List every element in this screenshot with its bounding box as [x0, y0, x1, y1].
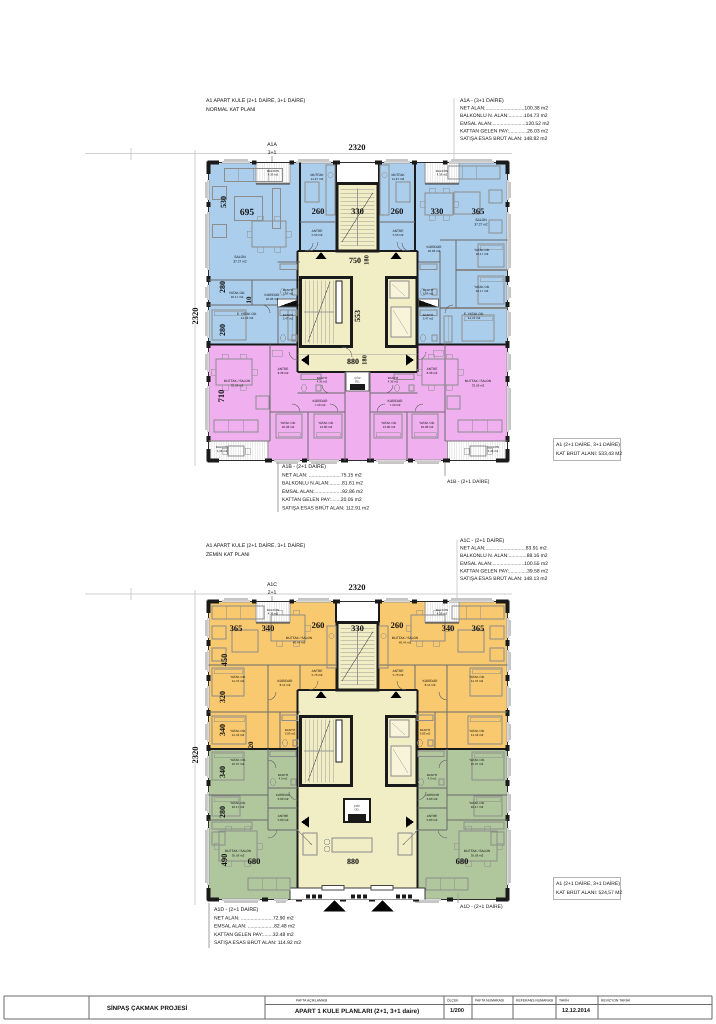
svg-text:4.3 m2: 4.3 m2 — [279, 777, 288, 781]
svg-text:20: 20 — [247, 741, 255, 749]
svg-text:TARİH: TARİH — [559, 999, 569, 1003]
svg-text:SALON: SALON — [234, 255, 246, 259]
svg-text:A1 (2+1 DAİRE, 3+1 DAİRE): A1 (2+1 DAİRE, 3+1 DAİRE) — [556, 441, 620, 448]
svg-text:A1A: A1A — [267, 142, 277, 148]
svg-text:4.35 m2: 4.35 m2 — [437, 612, 448, 616]
svg-text:11.76 m2: 11.76 m2 — [471, 679, 484, 683]
svg-text:SİNPAŞ ÇAKMAK PROJESİ: SİNPAŞ ÇAKMAK PROJESİ — [107, 1004, 188, 1012]
svg-text:14.43 m2: 14.43 m2 — [241, 316, 254, 320]
svg-text:10.98 m2: 10.98 m2 — [421, 425, 434, 429]
svg-text:2320: 2320 — [349, 582, 366, 592]
svg-text:NET ALAN: ....................: NET ALAN: .......................72.90 m… — [214, 915, 294, 921]
svg-text:MUTFAK / SALON: MUTFAK / SALON — [464, 849, 491, 853]
svg-text:A1B - (2+1 DAİRE): A1B - (2+1 DAİRE) — [447, 478, 490, 485]
svg-text:10.06 m2: 10.06 m2 — [428, 249, 441, 253]
svg-text:4.3 m2: 4.3 m2 — [428, 777, 437, 781]
svg-text:MUTFAK / SALON: MUTFAK / SALON — [224, 379, 251, 383]
svg-text:340: 340 — [218, 724, 227, 736]
svg-text:7.10 m2: 7.10 m2 — [390, 403, 401, 407]
svg-text:KAT BRÜT ALANI: 533,43 M2: KAT BRÜT ALANI: 533,43 M2 — [556, 450, 622, 457]
svg-text:A1 APART KULE (2+1 DAİRE, 3+1: A1 APART KULE (2+1 DAİRE, 3+1 DAİRE) — [206, 542, 305, 549]
svg-text:280: 280 — [218, 281, 227, 293]
svg-text:490: 490 — [219, 854, 229, 867]
svg-text:4.36 m2: 4.36 m2 — [388, 380, 399, 384]
svg-text:11.27 m2: 11.27 m2 — [311, 177, 324, 181]
svg-text:5.70 m2: 5.70 m2 — [393, 673, 404, 677]
svg-text:NET ALAN:.....................: NET ALAN:............................100… — [460, 106, 548, 112]
svg-text:695: 695 — [240, 208, 255, 218]
svg-text:A1A - (3+1 DAİRE): A1A - (3+1 DAİRE) — [460, 97, 504, 104]
svg-text:ZEMİN KAT PLANI: ZEMİN KAT PLANI — [206, 551, 250, 558]
svg-text:3.60 m2: 3.60 m2 — [278, 797, 289, 801]
svg-text:10.17 m2: 10.17 m2 — [471, 805, 484, 809]
svg-text:5.60 m2: 5.60 m2 — [427, 818, 438, 822]
svg-text:A1 (2+1 DAİRE, 3+1 DAİRE): A1 (2+1 DAİRE, 3+1 DAİRE) — [556, 880, 620, 887]
svg-text:180: 180 — [362, 355, 369, 365]
svg-text:365: 365 — [472, 206, 485, 216]
svg-text:REFERANS NUMARASI: REFERANS NUMARASI — [516, 999, 553, 1003]
svg-text:4.35 m2: 4.35 m2 — [268, 612, 279, 616]
svg-text:BALKONLU N.ALAN:.........81.61: BALKONLU N.ALAN:.........81.61 m2 — [282, 481, 363, 487]
svg-text:15.37 m2: 15.37 m2 — [232, 762, 245, 766]
svg-text:8.38 m2: 8.38 m2 — [427, 371, 438, 375]
svg-text:2.95 m2: 2.95 m2 — [283, 292, 294, 296]
svg-text:EMSAL ALAN: ..................: EMSAL ALAN: ...................82.48 m2 — [214, 924, 295, 930]
svg-text:A1D - (2+1 DAİRE): A1D - (2+1 DAİRE) — [214, 906, 259, 913]
svg-text:365: 365 — [230, 623, 243, 633]
svg-text:PAFTA NUMARASI: PAFTA NUMARASI — [475, 999, 504, 1003]
svg-text:4.35 m2: 4.35 m2 — [437, 173, 448, 177]
svg-text:EMSAL ALAN:...................: EMSAL ALAN:....................92.86 m2 — [282, 489, 363, 495]
svg-text:15.37 m2: 15.37 m2 — [471, 762, 484, 766]
svg-text:280: 280 — [218, 324, 227, 336]
svg-text:KAT BRÜT ALANI: 524,57 M2: KAT BRÜT ALANI: 524,57 M2 — [556, 889, 622, 896]
svg-text:750: 750 — [349, 256, 361, 265]
svg-text:11.76 m2: 11.76 m2 — [232, 679, 245, 683]
svg-text:2320: 2320 — [190, 747, 200, 764]
svg-text:450: 450 — [219, 654, 229, 667]
svg-text:KATTAN GELEN PAY:.............: KATTAN GELEN PAY:.............26.03 m2 — [460, 128, 548, 134]
svg-text:330: 330 — [431, 206, 444, 216]
svg-text:365: 365 — [472, 623, 485, 633]
svg-text:37.27 m2: 37.27 m2 — [233, 259, 247, 263]
svg-text:2320: 2320 — [349, 142, 366, 152]
svg-text:340: 340 — [218, 766, 227, 778]
svg-text:A1B - (2+1 DAİRE): A1B - (2+1 DAİRE) — [282, 463, 326, 470]
svg-text:330: 330 — [351, 206, 364, 216]
svg-text:ÖLÇEK: ÖLÇEK — [447, 999, 459, 1003]
svg-text:35.58 m2: 35.58 m2 — [232, 853, 245, 857]
svg-text:35.58 m2: 35.58 m2 — [471, 853, 484, 857]
svg-text:7.10 m2: 7.10 m2 — [315, 403, 326, 407]
svg-text:10.98 m2: 10.98 m2 — [282, 425, 295, 429]
svg-text:MUTFAK / SALON: MUTFAK / SALON — [225, 849, 252, 853]
svg-text:13.80 m2: 13.80 m2 — [320, 425, 333, 429]
svg-text:8.14 m2: 8.14 m2 — [425, 683, 436, 687]
svg-text:330: 330 — [351, 623, 364, 633]
svg-text:5.60 m2: 5.60 m2 — [278, 818, 289, 822]
svg-text:2320: 2320 — [190, 308, 200, 325]
svg-text:340: 340 — [262, 623, 275, 633]
svg-text:NET ALAN: ....................: NET ALAN: .......................75.15 m… — [282, 472, 362, 478]
svg-text:260: 260 — [391, 620, 404, 630]
svg-text:PAFTA AÇIKLAMASI: PAFTA AÇIKLAMASI — [296, 999, 327, 1003]
svg-text:14.42 m2: 14.42 m2 — [471, 733, 484, 737]
svg-text:40.44 m2: 40.44 m2 — [399, 640, 412, 644]
svg-text:880: 880 — [347, 357, 359, 366]
svg-text:2+1: 2+1 — [268, 590, 277, 596]
svg-text:14.43 m2: 14.43 m2 — [468, 316, 481, 320]
svg-text:MUTFAK / SALON: MUTFAK / SALON — [465, 379, 492, 383]
svg-text:10.17 m2: 10.17 m2 — [232, 805, 245, 809]
svg-text:NORMAL KAT PLANI: NORMAL KAT PLANI — [206, 107, 256, 113]
svg-text:880: 880 — [347, 857, 359, 866]
svg-text:5.70 m2: 5.70 m2 — [312, 673, 323, 677]
svg-text:A1C - (2+1 DAİRE): A1C - (2+1 DAİRE) — [460, 537, 505, 544]
svg-text:13.80 m2: 13.80 m2 — [383, 425, 396, 429]
svg-text:14.42 m2: 14.42 m2 — [232, 733, 245, 737]
svg-text:OD.: OD. — [355, 380, 361, 384]
svg-text:5.50 m2: 5.50 m2 — [393, 233, 404, 237]
svg-text:12.12.2014: 12.12.2014 — [562, 1008, 591, 1014]
svg-text:EMSAL ALAN:...................: EMSAL ALAN:.......................100.55… — [460, 561, 548, 567]
svg-text:4.35 m2: 4.35 m2 — [268, 173, 279, 177]
svg-text:MUTFAK / SALON: MUTFAK / SALON — [392, 636, 419, 640]
svg-text:280: 280 — [218, 806, 227, 818]
svg-text:1/200: 1/200 — [450, 1007, 464, 1014]
svg-text:260: 260 — [312, 206, 325, 216]
svg-text:10: 10 — [245, 296, 253, 304]
svg-text:530: 530 — [219, 196, 228, 208]
svg-text:710: 710 — [216, 390, 226, 403]
svg-text:10.17 m2: 10.17 m2 — [231, 295, 244, 299]
svg-text:APART 1 KULE PLANLARI (2+1, 3: APART 1 KULE PLANLARI (2+1, 3+1 daire) — [295, 1008, 419, 1015]
svg-text:KATTAN GELEN PAY:.......32.48: KATTAN GELEN PAY:.......32.48 m2 — [214, 932, 294, 938]
svg-text:BALKONLU N. ALAN:.............: BALKONLU N. ALAN:.............88.16 m2 — [460, 553, 548, 559]
svg-text:SATIŞA ESAS BRÜT ALAN: 148.82: SATIŞA ESAS BRÜT ALAN: 148.82 m2 — [460, 135, 548, 142]
svg-text:NET ALAN:.....................: NET ALAN:.............................83… — [460, 546, 547, 552]
svg-text:10.17 m2: 10.17 m2 — [476, 252, 489, 256]
svg-text:EMSAL ALAN:...................: EMSAL ALAN:........................120.5… — [460, 121, 550, 127]
svg-text:680: 680 — [456, 856, 469, 866]
svg-text:16.17 m2: 16.17 m2 — [476, 289, 489, 293]
svg-text:A1 APART KULE (2+1 DAİRE, 3+1: A1 APART KULE (2+1 DAİRE, 3+1 DAİRE) — [206, 97, 305, 104]
svg-text:MUTFAK / SALON: MUTFAK / SALON — [286, 636, 313, 640]
svg-text:5.50 m2: 5.50 m2 — [312, 233, 323, 237]
svg-text:SATIŞA ESAS BRÜT ALAN: 114.92: SATIŞA ESAS BRÜT ALAN: 114.92 m2 — [214, 939, 301, 946]
svg-text:33.58 m2: 33.58 m2 — [231, 383, 244, 387]
svg-text:3.05 m2: 3.05 m2 — [423, 292, 434, 296]
svg-text:SATIŞA ESAS BRÜT ALAN: 148.13: SATIŞA ESAS BRÜT ALAN: 148.13 m2 — [460, 575, 548, 582]
svg-text:37.27 m2: 37.27 m2 — [474, 222, 488, 226]
svg-text:8.14 m2: 8.14 m2 — [280, 683, 291, 687]
svg-text:KATTAN GELEN PAY:.......20.05: KATTAN GELEN PAY:.......20.05 m2 — [282, 497, 362, 503]
svg-text:40.44 m2: 40.44 m2 — [293, 640, 306, 644]
svg-text:180: 180 — [364, 255, 371, 265]
svg-text:320: 320 — [218, 691, 227, 703]
svg-text:OD.: OD. — [354, 808, 360, 812]
svg-text:4.36 m2: 4.36 m2 — [317, 380, 328, 384]
svg-text:SATIŞA ESAS BRÜT ALAN: 112.91: SATIŞA ESAS BRÜT ALAN: 112.91 m2 — [282, 505, 369, 512]
svg-text:8.38 m2: 8.38 m2 — [278, 371, 289, 375]
svg-text:KATTAN GELEN PAY:.............: KATTAN GELEN PAY:.............39.58 m2 — [460, 568, 548, 574]
svg-text:6.48 m2: 6.48 m2 — [488, 449, 499, 453]
svg-text:3+1: 3+1 — [268, 150, 277, 156]
svg-text:A1C: A1C — [267, 582, 277, 588]
svg-text:REVİZYON TARİHİ: REVİZYON TARİHİ — [601, 999, 630, 1003]
svg-text:33.58 m2: 33.58 m2 — [472, 383, 485, 387]
svg-text:11.27 m2: 11.27 m2 — [392, 177, 405, 181]
svg-text:260: 260 — [312, 620, 325, 630]
svg-text:A1D - (2+1 DAİRE): A1D - (2+1 DAİRE) — [460, 903, 503, 910]
svg-text:340: 340 — [442, 623, 455, 633]
svg-text:3.60 m2: 3.60 m2 — [427, 797, 438, 801]
svg-text:6.48 m2: 6.48 m2 — [217, 449, 228, 453]
svg-text:10.06 m2: 10.06 m2 — [266, 297, 279, 301]
svg-text:3.47 m2: 3.47 m2 — [283, 317, 294, 321]
svg-text:260: 260 — [391, 206, 404, 216]
svg-text:3.47 m2: 3.47 m2 — [423, 317, 434, 321]
svg-text:553: 553 — [353, 310, 362, 322]
svg-text:BALKONLU N. ALAN:...........10: BALKONLU N. ALAN:...........104.73 m2 — [460, 113, 548, 119]
svg-text:3.85 m2: 3.85 m2 — [285, 732, 296, 736]
svg-text:SALON: SALON — [475, 218, 487, 222]
svg-text:3.85 m2: 3.85 m2 — [420, 732, 431, 736]
svg-text:680: 680 — [248, 856, 261, 866]
